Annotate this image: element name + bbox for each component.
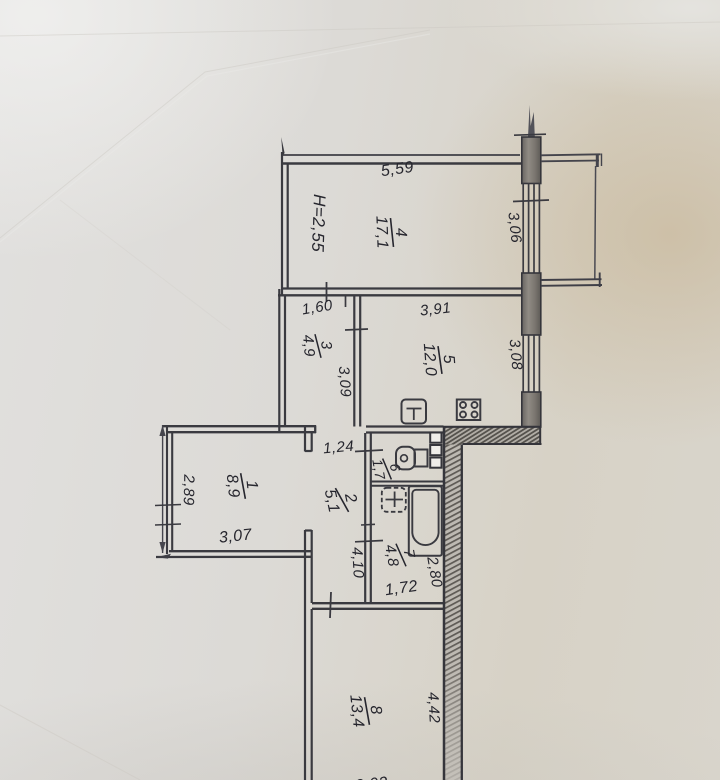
svg-text:8: 8 <box>367 705 385 716</box>
svg-text:5,1: 5,1 <box>321 488 343 515</box>
svg-text:4,42: 4,42 <box>424 692 443 724</box>
svg-text:1,72: 1,72 <box>384 578 419 599</box>
svg-text:H=2,55: H=2,55 <box>308 194 329 253</box>
svg-text:2,80: 2,80 <box>423 554 445 589</box>
svg-text:3,08: 3,08 <box>506 338 526 371</box>
svg-text:3,09: 3,09 <box>335 366 354 398</box>
svg-text:1: 1 <box>243 480 261 491</box>
svg-text:3,06: 3,06 <box>504 211 524 244</box>
svg-text:1,24: 1,24 <box>322 438 355 458</box>
svg-text:5: 5 <box>440 354 458 365</box>
svg-text:4,9: 4,9 <box>299 334 318 358</box>
svg-text:3,91: 3,91 <box>419 299 452 319</box>
svg-text:3,07: 3,07 <box>218 526 253 546</box>
svg-text:5,59: 5,59 <box>380 159 415 180</box>
svg-text:4,8: 4,8 <box>381 543 402 568</box>
svg-text:4: 4 <box>392 228 409 238</box>
svg-text:1,60: 1,60 <box>301 297 335 319</box>
svg-text:1,7: 1,7 <box>369 458 389 482</box>
svg-text:8,9: 8,9 <box>223 473 242 498</box>
svg-text:2,89: 2,89 <box>180 473 198 506</box>
svg-text:4,10: 4,10 <box>348 547 367 579</box>
svg-text:17,1: 17,1 <box>372 216 390 250</box>
svg-text:3: 3 <box>317 340 335 350</box>
svg-text:6: 6 <box>387 462 404 473</box>
svg-text:3,02: 3,02 <box>354 774 389 780</box>
svg-text:13,4: 13,4 <box>346 694 366 729</box>
svg-text:12,0: 12,0 <box>420 343 439 377</box>
